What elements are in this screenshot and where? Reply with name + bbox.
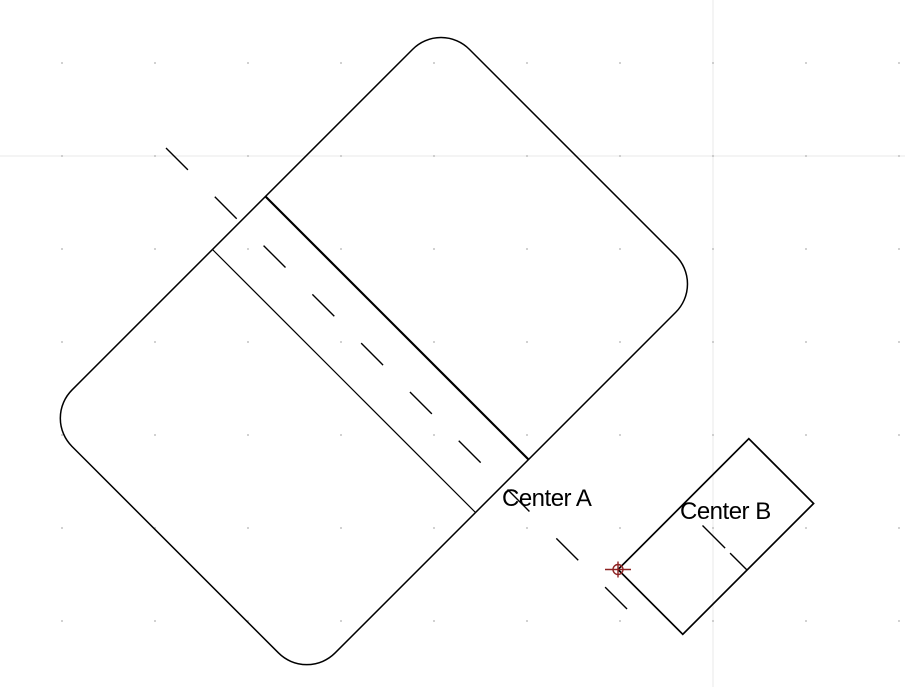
grid-dot: [340, 62, 342, 64]
center-point-marker[interactable]: [605, 562, 631, 578]
grid-dot: [898, 62, 900, 64]
centerline-b[interactable]: [703, 526, 748, 571]
grid-dot: [526, 620, 528, 622]
grid-dot: [712, 527, 714, 529]
grid-dot: [526, 155, 528, 157]
grid-dot: [898, 155, 900, 157]
grid-dot: [433, 434, 435, 436]
grid-dot: [526, 434, 528, 436]
grid-dot: [619, 62, 621, 64]
grid-dot: [712, 434, 714, 436]
grid-dot: [898, 527, 900, 529]
grid-dot: [61, 434, 63, 436]
grid-dot: [805, 341, 807, 343]
grid-dot: [805, 527, 807, 529]
grid-dot: [61, 62, 63, 64]
small-rect[interactable]: [618, 439, 814, 635]
grid-dot: [247, 527, 249, 529]
grid-dot: [247, 62, 249, 64]
label-center-a[interactable]: Center A: [502, 485, 592, 512]
grid-dot: [154, 155, 156, 157]
grid-dot: [619, 155, 621, 157]
grid-dot: [619, 341, 621, 343]
label-center-b[interactable]: Center B: [680, 498, 771, 525]
small-rect-outline[interactable]: [618, 439, 814, 635]
grid-dot: [433, 62, 435, 64]
grid-dot: [61, 341, 63, 343]
grid-dot: [340, 620, 342, 622]
grid-dot: [247, 248, 249, 250]
grid-dot: [898, 248, 900, 250]
grid-dot: [340, 248, 342, 250]
grid-dot: [433, 620, 435, 622]
large-rounded-rect[interactable]: [44, 21, 704, 681]
slot-band-upper-line[interactable]: [266, 197, 529, 460]
grid-dot: [340, 527, 342, 529]
grid-dot: [340, 434, 342, 436]
grid-dot: [712, 62, 714, 64]
grid-dot: [247, 155, 249, 157]
grid-dot: [526, 62, 528, 64]
grid-dot: [61, 248, 63, 250]
grid-dot: [526, 248, 528, 250]
slot-band-lower-line[interactable]: [213, 250, 476, 513]
large-rounded-rect-outline[interactable]: [44, 21, 704, 681]
drawing-viewport[interactable]: Center A Center B: [0, 0, 905, 687]
grid-dot: [712, 248, 714, 250]
grid-dot: [61, 527, 63, 529]
grid-dot: [247, 434, 249, 436]
grid-dot: [619, 620, 621, 622]
grid-dot: [805, 62, 807, 64]
grid-dot: [154, 341, 156, 343]
grid-dot: [712, 341, 714, 343]
grid-dot: [433, 527, 435, 529]
grid-dot: [154, 434, 156, 436]
grid-dot: [619, 248, 621, 250]
grid-dot: [433, 341, 435, 343]
grid-dot: [154, 248, 156, 250]
grid-dot: [712, 620, 714, 622]
grid-dot: [433, 248, 435, 250]
grid-dot: [619, 527, 621, 529]
grid-dot: [898, 434, 900, 436]
grid-dot: [526, 527, 528, 529]
grid-dot: [433, 155, 435, 157]
grid-dot: [898, 620, 900, 622]
grid-dot: [61, 155, 63, 157]
grid-dot: [154, 62, 156, 64]
grid-dot: [805, 620, 807, 622]
grid-dot: [340, 341, 342, 343]
centerline-a[interactable]: [166, 148, 631, 613]
grid-dot: [154, 620, 156, 622]
grid-dot: [619, 434, 621, 436]
grid-dot: [526, 341, 528, 343]
grid-dot: [805, 248, 807, 250]
grid-dot: [712, 155, 714, 157]
grid-dot: [805, 434, 807, 436]
grid-dot: [247, 341, 249, 343]
grid-dot: [61, 620, 63, 622]
grid-dot: [898, 341, 900, 343]
cad-drawing-canvas[interactable]: Center A Center B: [0, 0, 905, 687]
grid-dots: [61, 62, 900, 622]
grid-dot: [805, 155, 807, 157]
grid-dot: [340, 155, 342, 157]
